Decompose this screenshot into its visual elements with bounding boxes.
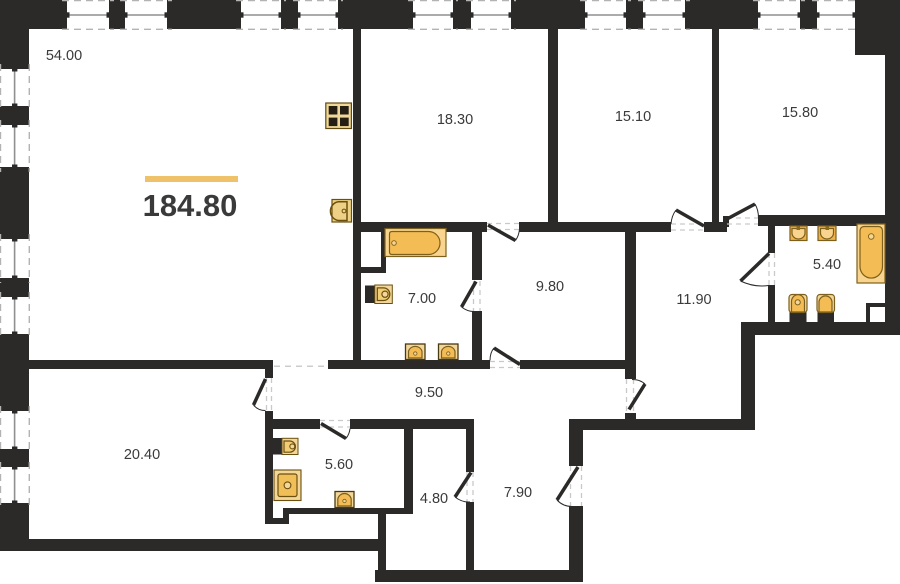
svg-text:18.30: 18.30 [437,112,473,128]
svg-text:9.80: 9.80 [536,279,564,295]
svg-text:20.40: 20.40 [124,447,160,463]
svg-text:7.90: 7.90 [504,485,532,501]
svg-text:54.00: 54.00 [46,48,82,64]
svg-text:11.90: 11.90 [676,292,711,308]
svg-text:184.80: 184.80 [143,188,238,223]
svg-text:15.80: 15.80 [782,105,818,121]
svg-text:5.60: 5.60 [325,457,353,473]
svg-text:7.00: 7.00 [408,291,436,307]
svg-text:15.10: 15.10 [615,109,651,125]
svg-text:4.80: 4.80 [420,491,448,507]
svg-text:5.40: 5.40 [813,257,841,273]
svg-text:9.50: 9.50 [415,385,443,401]
